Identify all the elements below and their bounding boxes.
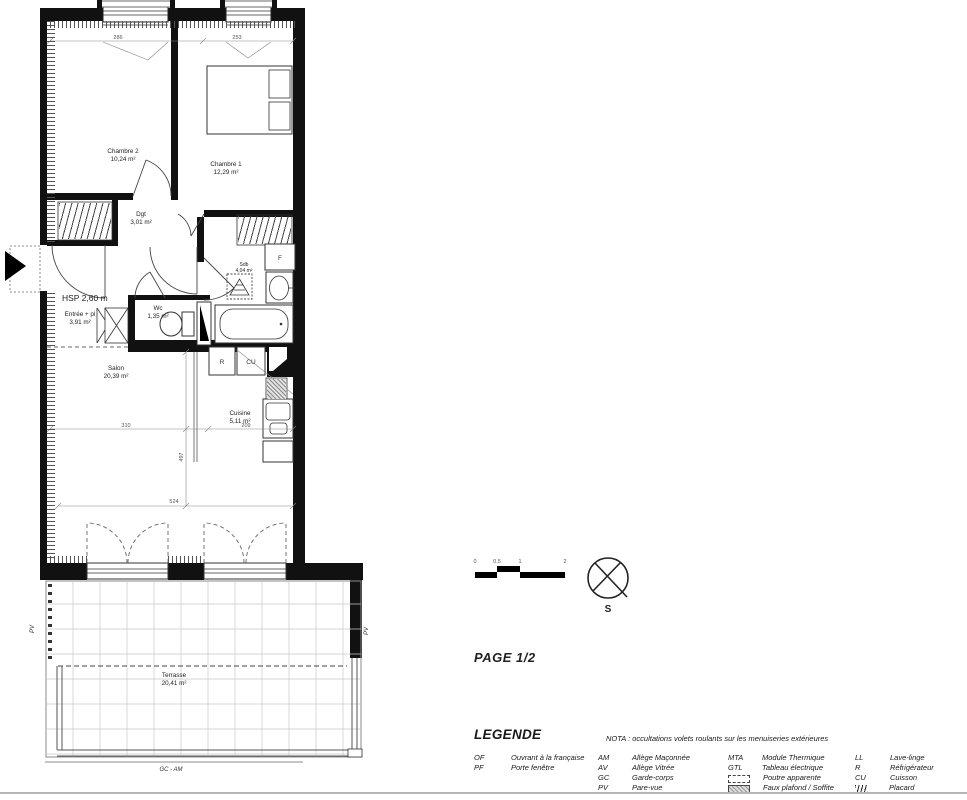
legend-label: Cuisson	[890, 773, 917, 783]
legend-abbr: AM	[598, 753, 632, 763]
legend-column-3: MTA Module Thermique GTL Tableau électri…	[728, 753, 834, 793]
pare-vue-right-label: PV	[364, 626, 370, 635]
legend-item-mta: MTA Module Thermique	[728, 753, 834, 763]
kitchen-fixtures	[194, 345, 293, 462]
bathroom-fixtures	[160, 244, 295, 345]
dim-window-right: 253	[232, 35, 241, 41]
legend-abbr: GC	[598, 773, 632, 783]
scale-tick-05: 0.5	[493, 559, 501, 565]
legend-nota: NOTA : occultations volets roulants sur …	[606, 734, 828, 743]
legend-label: Tableau électrique	[762, 763, 823, 773]
room-chambre2-area: 10,24 m²	[111, 156, 136, 163]
legend-label: Porte fenêtre	[511, 763, 554, 773]
bedroom1-bed	[207, 66, 292, 134]
scale-tick-2: 2	[563, 559, 566, 565]
legend-label: Poutre apparente	[763, 773, 821, 783]
door-swings	[52, 160, 234, 300]
room-labels: Chambre 2 10,24 m² Chambre 1 12,29 m² Dg…	[62, 148, 253, 687]
room-dgt-name: Dgt	[136, 211, 146, 218]
legend-column-4: LL Lave-linge R Réfrigérateur CU Cuisson…	[855, 753, 934, 793]
legend-label: Réfrigérateur	[890, 763, 934, 773]
legend-item-of: OF Ouvrant à la française	[474, 753, 584, 763]
entrance	[5, 246, 40, 292]
legend-item-cu: CU Cuisson	[855, 773, 934, 783]
room-salon-name: Salon	[108, 365, 125, 372]
f-label: F	[278, 255, 282, 262]
floor-plan-drawing: 0 0.5 1 2 S Chambre 2 10,24 m² Chambre 1…	[0, 0, 967, 800]
legend-item-poutre: Poutre apparente	[728, 773, 834, 783]
french-door-swings	[87, 523, 286, 563]
legend-abbr: MTA	[728, 753, 762, 763]
legend-item-gtl: GTL Tableau électrique	[728, 763, 834, 773]
room-entree-area: 3,91 m²	[69, 319, 90, 326]
legend-label: Ouvrant à la française	[511, 753, 584, 763]
legend-label: Allège Maçonnée	[632, 753, 690, 763]
floor-plan-page: 0 0.5 1 2 S Chambre 2 10,24 m² Chambre 1…	[0, 0, 967, 800]
dim-overall-width: 524	[169, 499, 178, 505]
room-wc-name: Wc	[153, 305, 162, 312]
legend-abbr: LL	[855, 753, 890, 763]
legend-title: LEGENDE	[474, 727, 541, 742]
legend-abbr: GTL	[728, 763, 762, 773]
room-cuisine-name: Cuisine	[230, 410, 251, 417]
room-chambre2-name: Chambre 2	[107, 148, 139, 155]
room-salon-area: 20,39 m²	[104, 373, 129, 380]
dim-cuisine-width: 209	[241, 423, 250, 429]
scale-tick-0: 0	[473, 559, 476, 565]
page-number-label: PAGE 1/2	[474, 650, 536, 665]
page-footer-line	[0, 792, 967, 794]
room-entree-name: Entrée + pl	[65, 311, 96, 318]
terrasse	[45, 523, 362, 762]
room-dgt-area: 3,01 m²	[130, 219, 151, 226]
legend-label: Module Thermique	[762, 753, 825, 763]
legend-item-am: AM Allège Maçonnée	[598, 753, 690, 763]
pare-vue-left-label: PV	[30, 624, 36, 633]
ceiling-height-label: HSP 2,60 m	[62, 293, 108, 303]
room-terrasse-area: 20,41 m²	[162, 680, 187, 687]
legend-abbr: AV	[598, 763, 632, 773]
room-chambre1-area: 12,29 m²	[214, 169, 239, 176]
room-sdb-area: 4,04 m²	[236, 268, 253, 274]
dim-depth: 497	[179, 452, 185, 461]
railing-label: GC - AM	[159, 767, 182, 773]
legend-item-r: R Réfrigérateur	[855, 763, 934, 773]
legend-label: Garde-corps	[632, 773, 674, 783]
room-wc-area: 1,35 m²	[147, 313, 168, 320]
room-chambre1-name: Chambre 1	[210, 161, 242, 168]
room-terrasse-name: Terrasse	[162, 672, 187, 679]
legend-abbr: CU	[855, 773, 890, 783]
legend-label: Lave-linge	[890, 753, 925, 763]
dim-window-left: 286	[113, 35, 122, 41]
scale-tick-1: 1	[518, 559, 521, 565]
legend-column-1: OF Ouvrant à la française PF Porte fenêt…	[474, 753, 584, 773]
poutre-apparente-symbol	[728, 775, 750, 783]
legend-abbr: OF	[474, 753, 511, 763]
entrance-arrow-icon	[5, 251, 26, 281]
scale-bar: 0 0.5 1 2	[473, 559, 566, 578]
legend-item-av: AV Allège Vitrée	[598, 763, 690, 773]
legend-abbr: R	[855, 763, 890, 773]
fridge-label: R	[220, 359, 225, 366]
dim-salon-width: 310	[121, 423, 130, 429]
legend-column-2: AM Allège Maçonnée AV Allège Vitrée GC G…	[598, 753, 690, 793]
legend-label: Allège Vitrée	[632, 763, 674, 773]
cooking-label: CU	[246, 359, 256, 366]
legend-item-ll: LL Lave-linge	[855, 753, 934, 763]
legend-item-pf: PF Porte fenêtre	[474, 763, 584, 773]
legend-item-gc: GC Garde-corps	[598, 773, 690, 783]
compass-south-label: S	[605, 604, 612, 615]
legend-abbr: PF	[474, 763, 511, 773]
compass-icon: S	[588, 558, 628, 615]
